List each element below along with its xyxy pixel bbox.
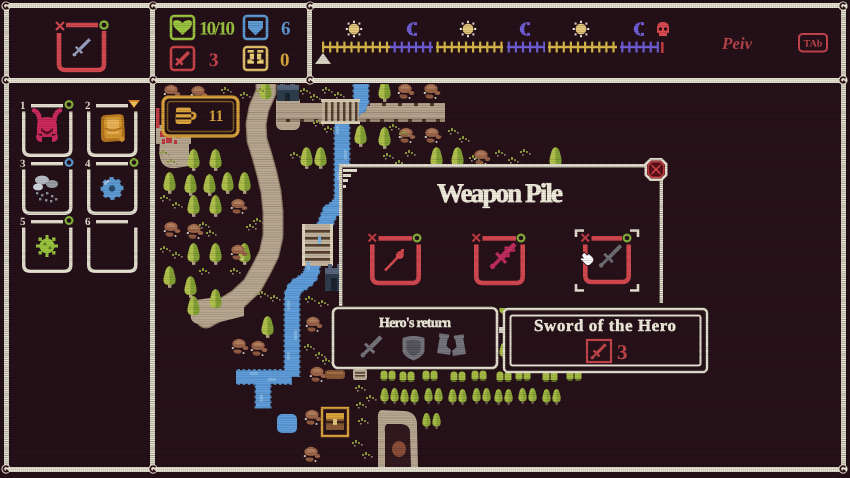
svg-text:Hero's return: Hero's return: [379, 316, 451, 331]
svg-text:6: 6: [281, 19, 291, 40]
svg-text:0: 0: [280, 50, 290, 71]
svg-text:10/10: 10/10: [199, 19, 235, 40]
svg-text:Sword of the Hero: Sword of the Hero: [534, 316, 676, 335]
svg-text:Peiv: Peiv: [721, 34, 753, 53]
svg-text:3: 3: [209, 50, 219, 71]
svg-text:2: 2: [85, 100, 91, 112]
svg-text:5: 5: [20, 216, 26, 228]
svg-text:TAb: TAb: [804, 39, 823, 50]
svg-text:4: 4: [85, 158, 91, 170]
svg-text:11: 11: [208, 108, 223, 125]
svg-text:1: 1: [20, 100, 26, 112]
svg-text:6: 6: [85, 216, 91, 228]
svg-text:Weapon Pile: Weapon Pile: [437, 178, 563, 208]
svg-text:3: 3: [20, 158, 26, 170]
svg-text:3: 3: [617, 340, 628, 364]
